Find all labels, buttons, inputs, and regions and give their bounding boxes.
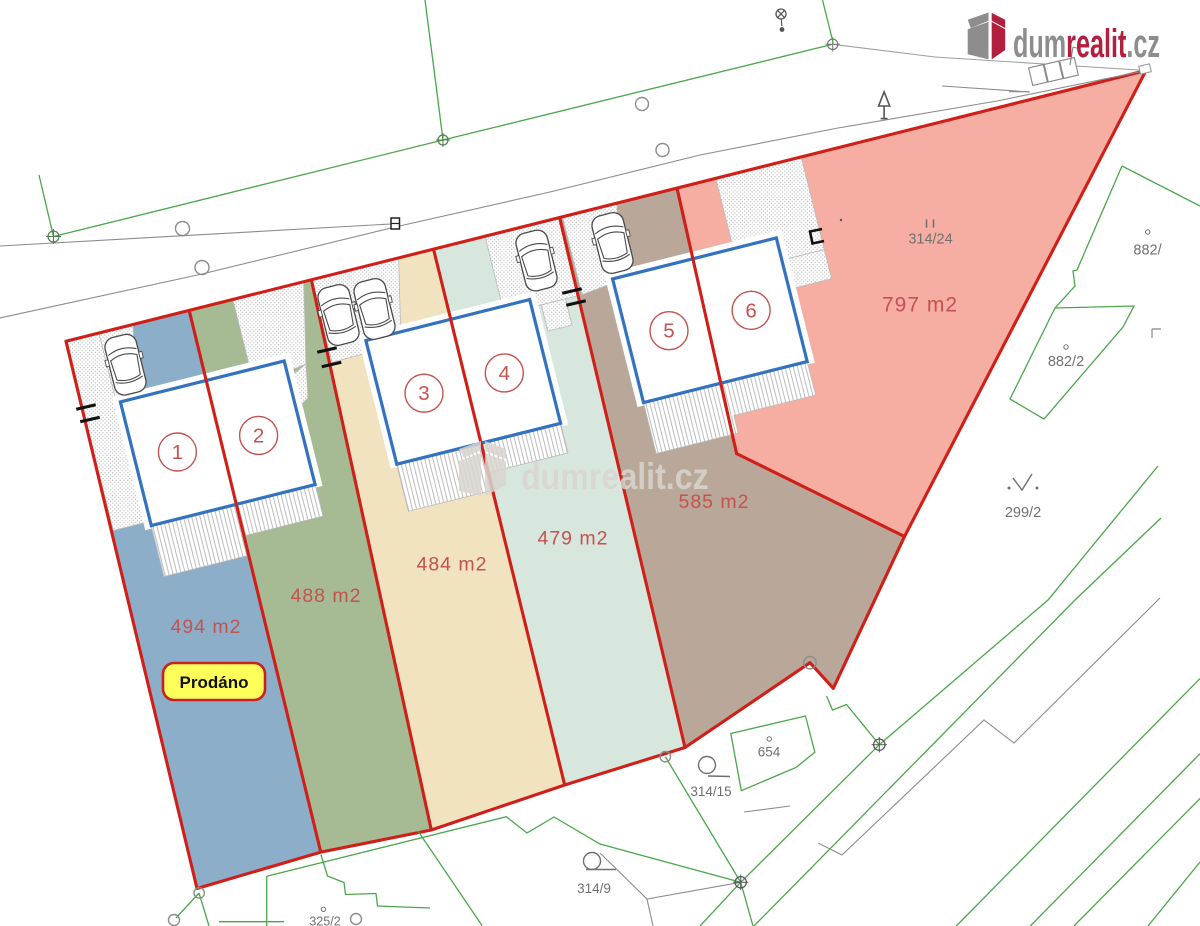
svg-text:325/2: 325/2 [309, 915, 340, 926]
svg-text:488 m2: 488 m2 [290, 585, 361, 607]
svg-text:494 m2: 494 m2 [170, 616, 241, 638]
svg-text:299/2: 299/2 [1005, 505, 1041, 521]
svg-text:5: 5 [663, 320, 674, 343]
svg-text:882/2: 882/2 [1048, 354, 1084, 370]
svg-text:2: 2 [253, 424, 264, 447]
svg-text:484 m2: 484 m2 [416, 554, 487, 576]
svg-text:Prodáno: Prodáno [180, 673, 249, 692]
svg-text:3: 3 [418, 382, 429, 405]
svg-text:6: 6 [745, 299, 756, 322]
svg-text:314/9: 314/9 [577, 881, 611, 896]
svg-text:882/: 882/ [1133, 243, 1162, 259]
svg-text:314/24: 314/24 [908, 232, 952, 248]
svg-text:479 m2: 479 m2 [537, 528, 608, 550]
svg-text:797 m2: 797 m2 [882, 294, 958, 317]
svg-text:654: 654 [758, 745, 781, 760]
svg-text:314/15: 314/15 [690, 784, 731, 799]
svg-text:dumrealit.cz: dumrealit.cz [1013, 22, 1160, 66]
svg-text:4: 4 [499, 362, 510, 385]
svg-text:dumrealit.cz: dumrealit.cz [521, 457, 709, 498]
svg-text:1: 1 [172, 441, 183, 464]
